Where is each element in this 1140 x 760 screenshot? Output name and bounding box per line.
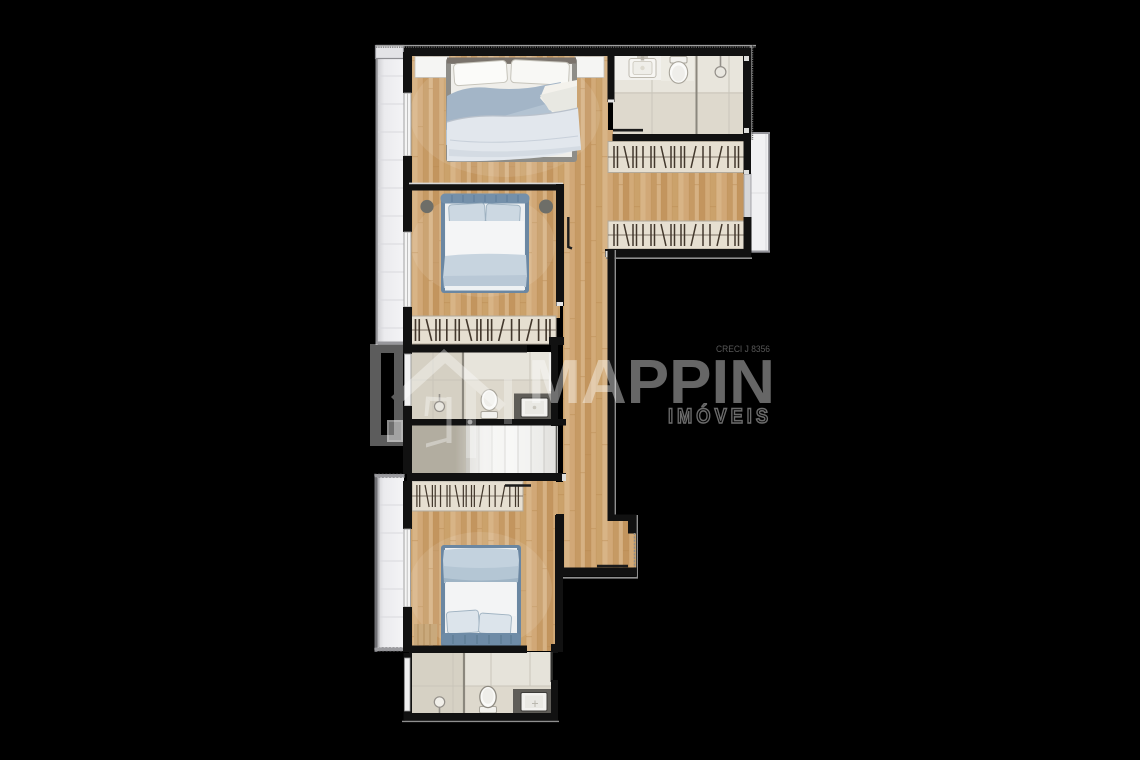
- svg-text:CRECI J 8356: CRECI J 8356: [716, 344, 770, 355]
- svg-text:IMÓVEIS: IMÓVEIS: [668, 404, 772, 428]
